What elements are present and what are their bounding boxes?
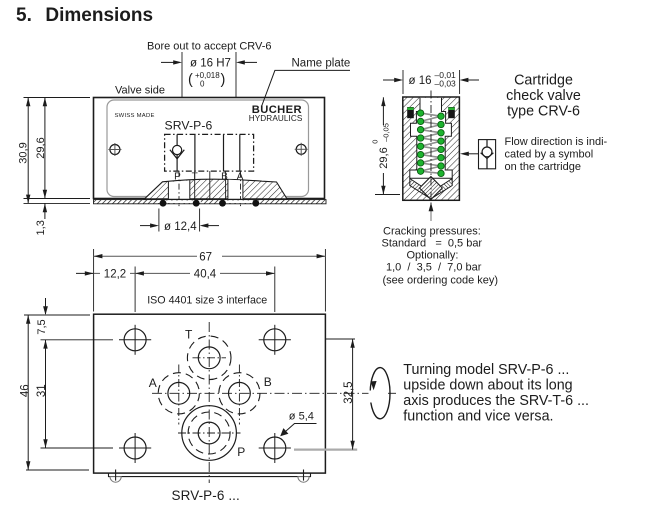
svg-text:HYDRAULICS: HYDRAULICS [249, 114, 303, 123]
svg-text:29,6: 29,6 [378, 147, 390, 168]
svg-text:32,5: 32,5 [343, 381, 355, 403]
svg-text:P: P [237, 445, 245, 459]
svg-text:(see ordering code key): (see ordering code key) [383, 275, 499, 287]
svg-text:B: B [264, 375, 272, 389]
svg-text:Flow direction is indi-: Flow direction is indi- [505, 136, 608, 148]
svg-text:7,5: 7,5 [36, 319, 48, 334]
svg-text:0: 0 [370, 140, 379, 144]
svg-text:axis produces the SRV-T-6 ...: axis produces the SRV-T-6 ... [403, 393, 589, 409]
svg-text:function and vice versa.: function and vice versa. [403, 409, 553, 425]
svg-text:ø 16 H7: ø 16 H7 [190, 58, 231, 70]
svg-text:on the cartridge: on the cartridge [505, 161, 581, 173]
svg-text:40,4: 40,4 [194, 268, 217, 280]
svg-text:check valve: check valve [506, 88, 581, 104]
svg-text:1,3: 1,3 [35, 220, 47, 235]
svg-text:cated by a symbol: cated by a symbol [505, 149, 594, 161]
svg-text:Cracking pressures:: Cracking pressures: [383, 226, 481, 238]
svg-text:30,9: 30,9 [18, 142, 30, 163]
svg-text:): ) [221, 72, 226, 88]
svg-text:ISO 4401 size 3 interface: ISO 4401 size 3 interface [147, 295, 267, 307]
svg-text:Turning model SRV-P-6 ...: Turning model SRV-P-6 ... [403, 362, 569, 378]
svg-text:SRV-P-6: SRV-P-6 [165, 119, 213, 133]
svg-text:46: 46 [20, 384, 32, 397]
svg-text:Name plate: Name plate [292, 58, 351, 70]
svg-text:Standard = 0,5 bar: Standard = 0,5 bar [382, 238, 483, 250]
svg-text:ø 12,4: ø 12,4 [164, 221, 197, 233]
svg-text:Cartridge: Cartridge [514, 73, 573, 89]
svg-text:SRV-P-6 ...: SRV-P-6 ... [172, 488, 240, 503]
svg-text:67: 67 [199, 252, 212, 264]
svg-text:Valve side: Valve side [115, 85, 165, 97]
svg-text:–0,05: –0,05 [381, 123, 390, 142]
svg-text:Dimensions: Dimensions [45, 5, 153, 26]
svg-text:ø 16: ø 16 [409, 75, 432, 87]
svg-text:A: A [149, 376, 157, 390]
svg-text:ø 5,4: ø 5,4 [289, 411, 314, 423]
svg-text:31: 31 [36, 384, 48, 397]
svg-text:1,0 / 3,5 / 7,0 bar: 1,0 / 3,5 / 7,0 bar [386, 262, 482, 274]
svg-text:upside down about its long: upside down about its long [403, 378, 572, 394]
svg-text:0: 0 [200, 80, 205, 89]
svg-text:12,2: 12,2 [104, 268, 126, 280]
svg-text:SWISS MADE: SWISS MADE [115, 113, 155, 119]
svg-text:T: T [185, 328, 193, 342]
svg-text:+0,018: +0,018 [195, 71, 220, 80]
svg-text:Bore out to accept CRV-6: Bore out to accept CRV-6 [147, 41, 272, 53]
svg-text:5.: 5. [16, 5, 32, 26]
svg-text:(: ( [188, 72, 193, 88]
svg-text:–0,03: –0,03 [435, 79, 457, 89]
svg-text:29,6: 29,6 [35, 137, 47, 158]
svg-text:type CRV-6: type CRV-6 [507, 104, 580, 120]
svg-text:Optionally:: Optionally: [407, 250, 459, 262]
